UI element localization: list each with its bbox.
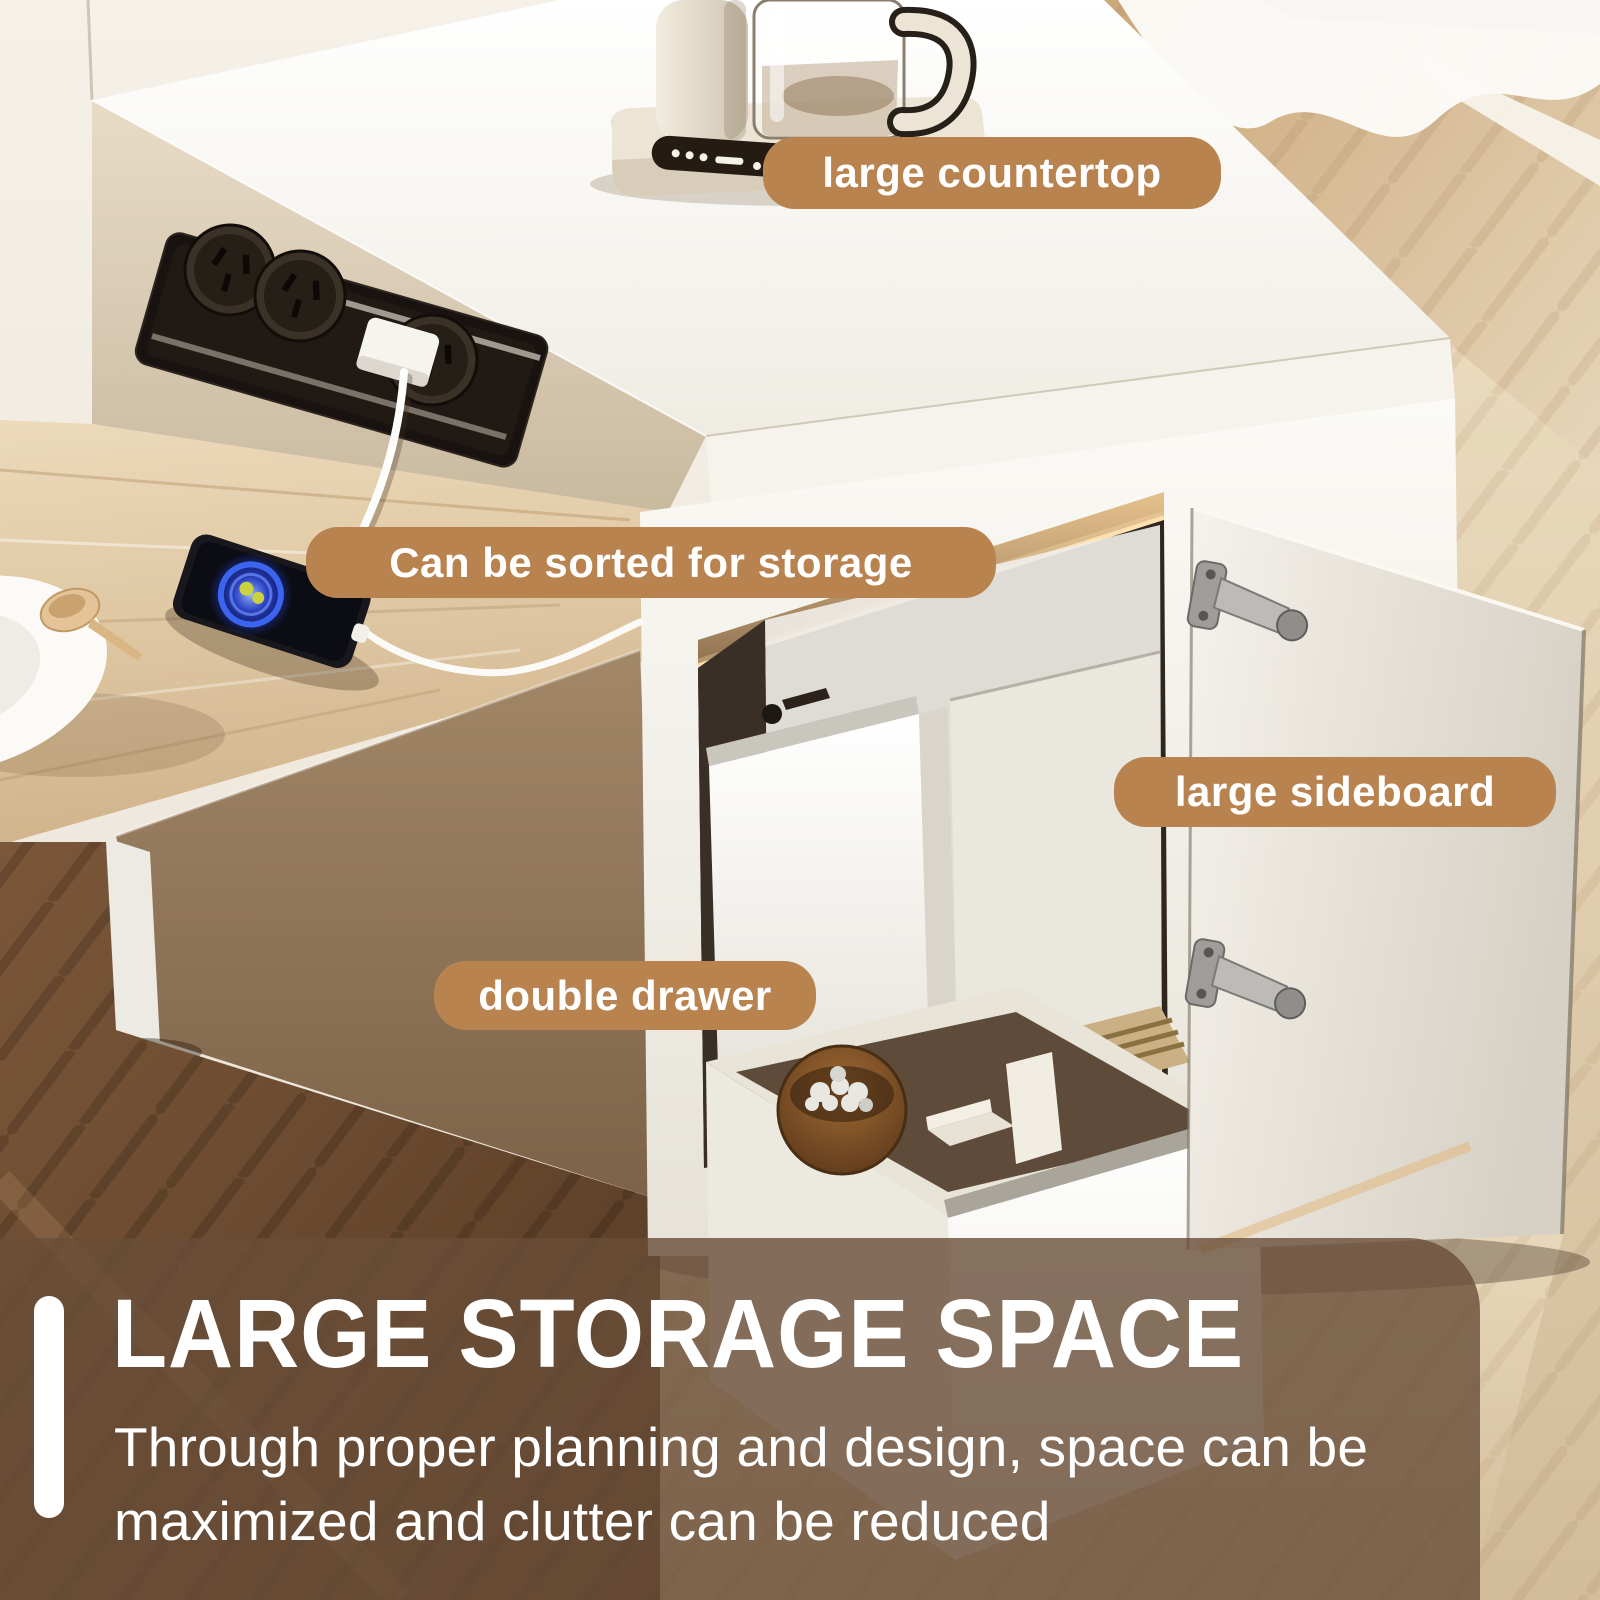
footer-overlay-panel: LARGE STORAGE SPACE Through proper plann… (0, 1238, 1480, 1600)
badge-large-sideboard: large sideboard (1114, 757, 1556, 827)
product-marketing-image: large countertop Can be sorted for stora… (0, 0, 1600, 1600)
cabinet-door (1185, 508, 1584, 1250)
accent-bar (34, 1296, 64, 1518)
footer-headline: LARGE STORAGE SPACE (112, 1278, 1244, 1390)
badge-sorted-storage: Can be sorted for storage (306, 527, 996, 598)
footer-subtitle: Through proper planning and design, spac… (114, 1410, 1368, 1558)
badge-double-drawer: double drawer (434, 961, 816, 1030)
badge-large-countertop: large countertop (763, 137, 1221, 209)
